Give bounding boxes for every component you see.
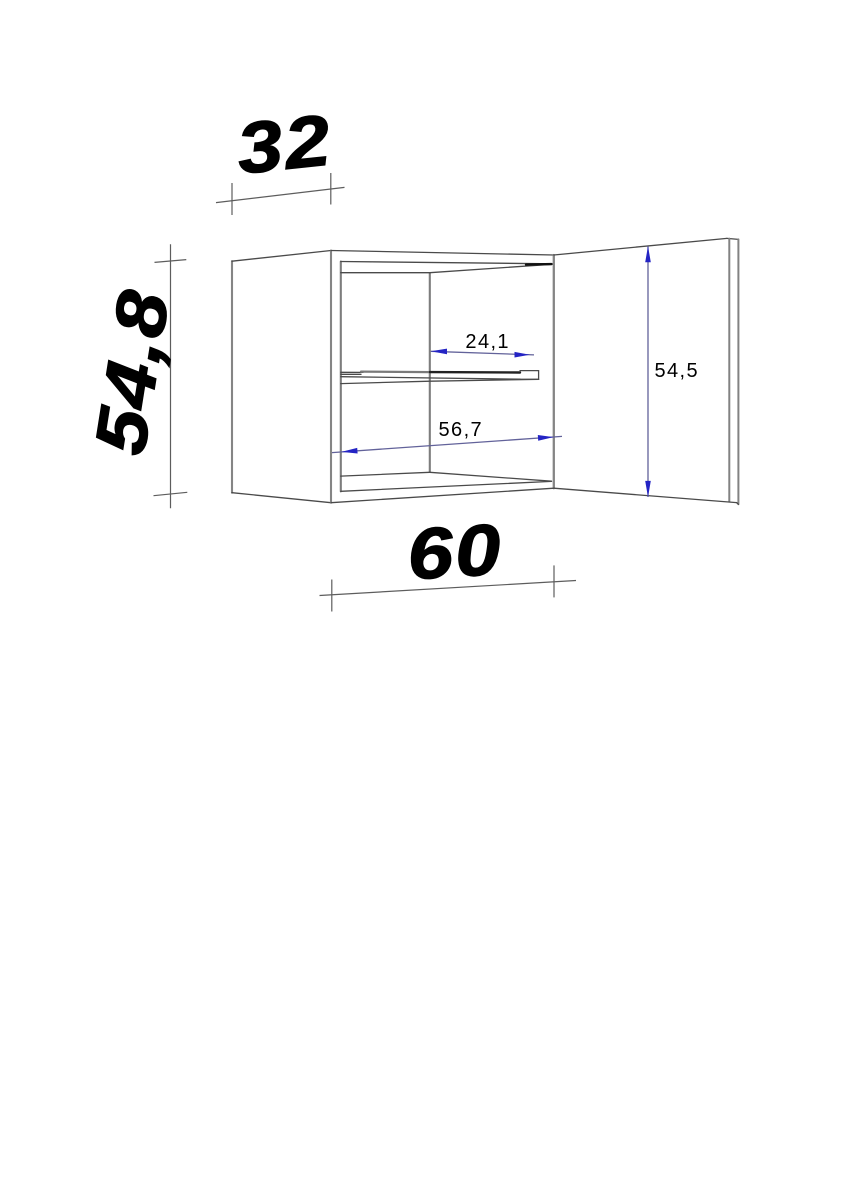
svg-text:56,7: 56,7 [439,419,484,441]
svg-text:60: 60 [405,509,505,595]
svg-text:54,5: 54,5 [655,360,700,382]
svg-text:32: 32 [233,100,336,190]
svg-text:24,1: 24,1 [465,331,510,353]
